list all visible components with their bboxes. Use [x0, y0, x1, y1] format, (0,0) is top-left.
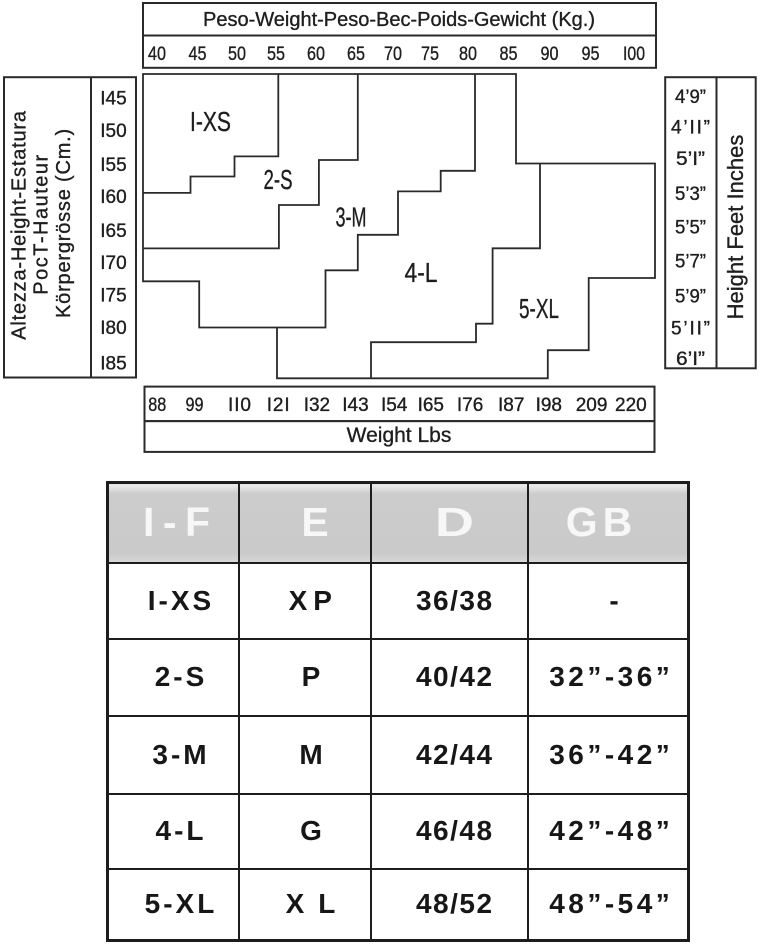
svg-text:I54: I54: [381, 395, 408, 416]
svg-text:5’I”: 5’I”: [676, 149, 705, 170]
svg-text:88: 88: [148, 395, 166, 416]
svg-text:I-XS: I-XS: [190, 106, 231, 137]
svg-text:I32: I32: [304, 395, 330, 416]
svg-text:209: 209: [576, 395, 608, 416]
svg-text:75: 75: [421, 44, 439, 65]
svg-text:Körpergrösse (Cm.): Körpergrösse (Cm.): [53, 128, 75, 318]
svg-text:5’3”: 5’3”: [675, 184, 706, 205]
svg-text:6’I”: 6’I”: [676, 349, 705, 370]
svg-text:I65: I65: [100, 221, 126, 242]
svg-text:40: 40: [148, 44, 166, 65]
svg-text:I50: I50: [100, 121, 126, 142]
svg-text:I2I: I2I: [267, 395, 290, 416]
svg-text:I45: I45: [100, 89, 126, 110]
svg-text:Peso-Weight-Peso-Bec-Poids-Gew: Peso-Weight-Peso-Bec-Poids-Gewicht (Kg.): [203, 9, 595, 31]
svg-text:I65: I65: [418, 395, 444, 416]
svg-text:I43: I43: [342, 395, 368, 416]
svg-text:Weight Lbs: Weight Lbs: [347, 424, 452, 447]
svg-text:65: 65: [347, 44, 365, 65]
svg-text:II0: II0: [228, 395, 251, 416]
svg-text:I76: I76: [457, 395, 483, 416]
svg-text:I55: I55: [100, 155, 126, 176]
svg-text:55: 55: [267, 44, 285, 65]
svg-text:4’II”: 4’II”: [671, 118, 710, 139]
svg-text:70: 70: [384, 44, 402, 65]
svg-text:4-L: 4-L: [405, 257, 438, 288]
svg-text:60: 60: [307, 44, 325, 65]
svg-text:50: 50: [228, 44, 246, 65]
svg-text:I75: I75: [100, 286, 126, 307]
svg-text:I98: I98: [536, 395, 562, 416]
svg-text:220: 220: [615, 395, 647, 416]
svg-text:I60: I60: [100, 187, 126, 208]
svg-text:4’9”: 4’9”: [675, 87, 706, 108]
svg-text:I85: I85: [100, 353, 126, 374]
svg-text:95: 95: [582, 44, 600, 65]
svg-text:I80: I80: [100, 318, 126, 339]
svg-text:5’7”: 5’7”: [675, 252, 706, 273]
svg-text:Altezza-Height-Estatura: Altezza-Height-Estatura: [9, 110, 31, 340]
svg-text:2-S: 2-S: [264, 164, 293, 195]
svg-text:I70: I70: [100, 253, 126, 274]
svg-text:45: 45: [189, 44, 207, 65]
svg-text:85: 85: [500, 44, 518, 65]
svg-text:5’5”: 5’5”: [675, 218, 706, 239]
svg-text:I87: I87: [498, 395, 524, 416]
svg-text:5’9”: 5’9”: [675, 287, 706, 308]
svg-text:80: 80: [459, 44, 477, 65]
svg-text:5’II”: 5’II”: [671, 319, 710, 340]
svg-text:5-XL: 5-XL: [519, 293, 559, 324]
svg-text:3-M: 3-M: [336, 202, 367, 233]
svg-text:Height Feet Inches: Height Feet Inches: [723, 135, 748, 320]
svg-text:I00: I00: [623, 44, 645, 65]
svg-text:90: 90: [541, 44, 559, 65]
svg-text:PocT-Hauteur: PocT-Hauteur: [31, 153, 53, 294]
svg-text:99: 99: [186, 395, 204, 416]
